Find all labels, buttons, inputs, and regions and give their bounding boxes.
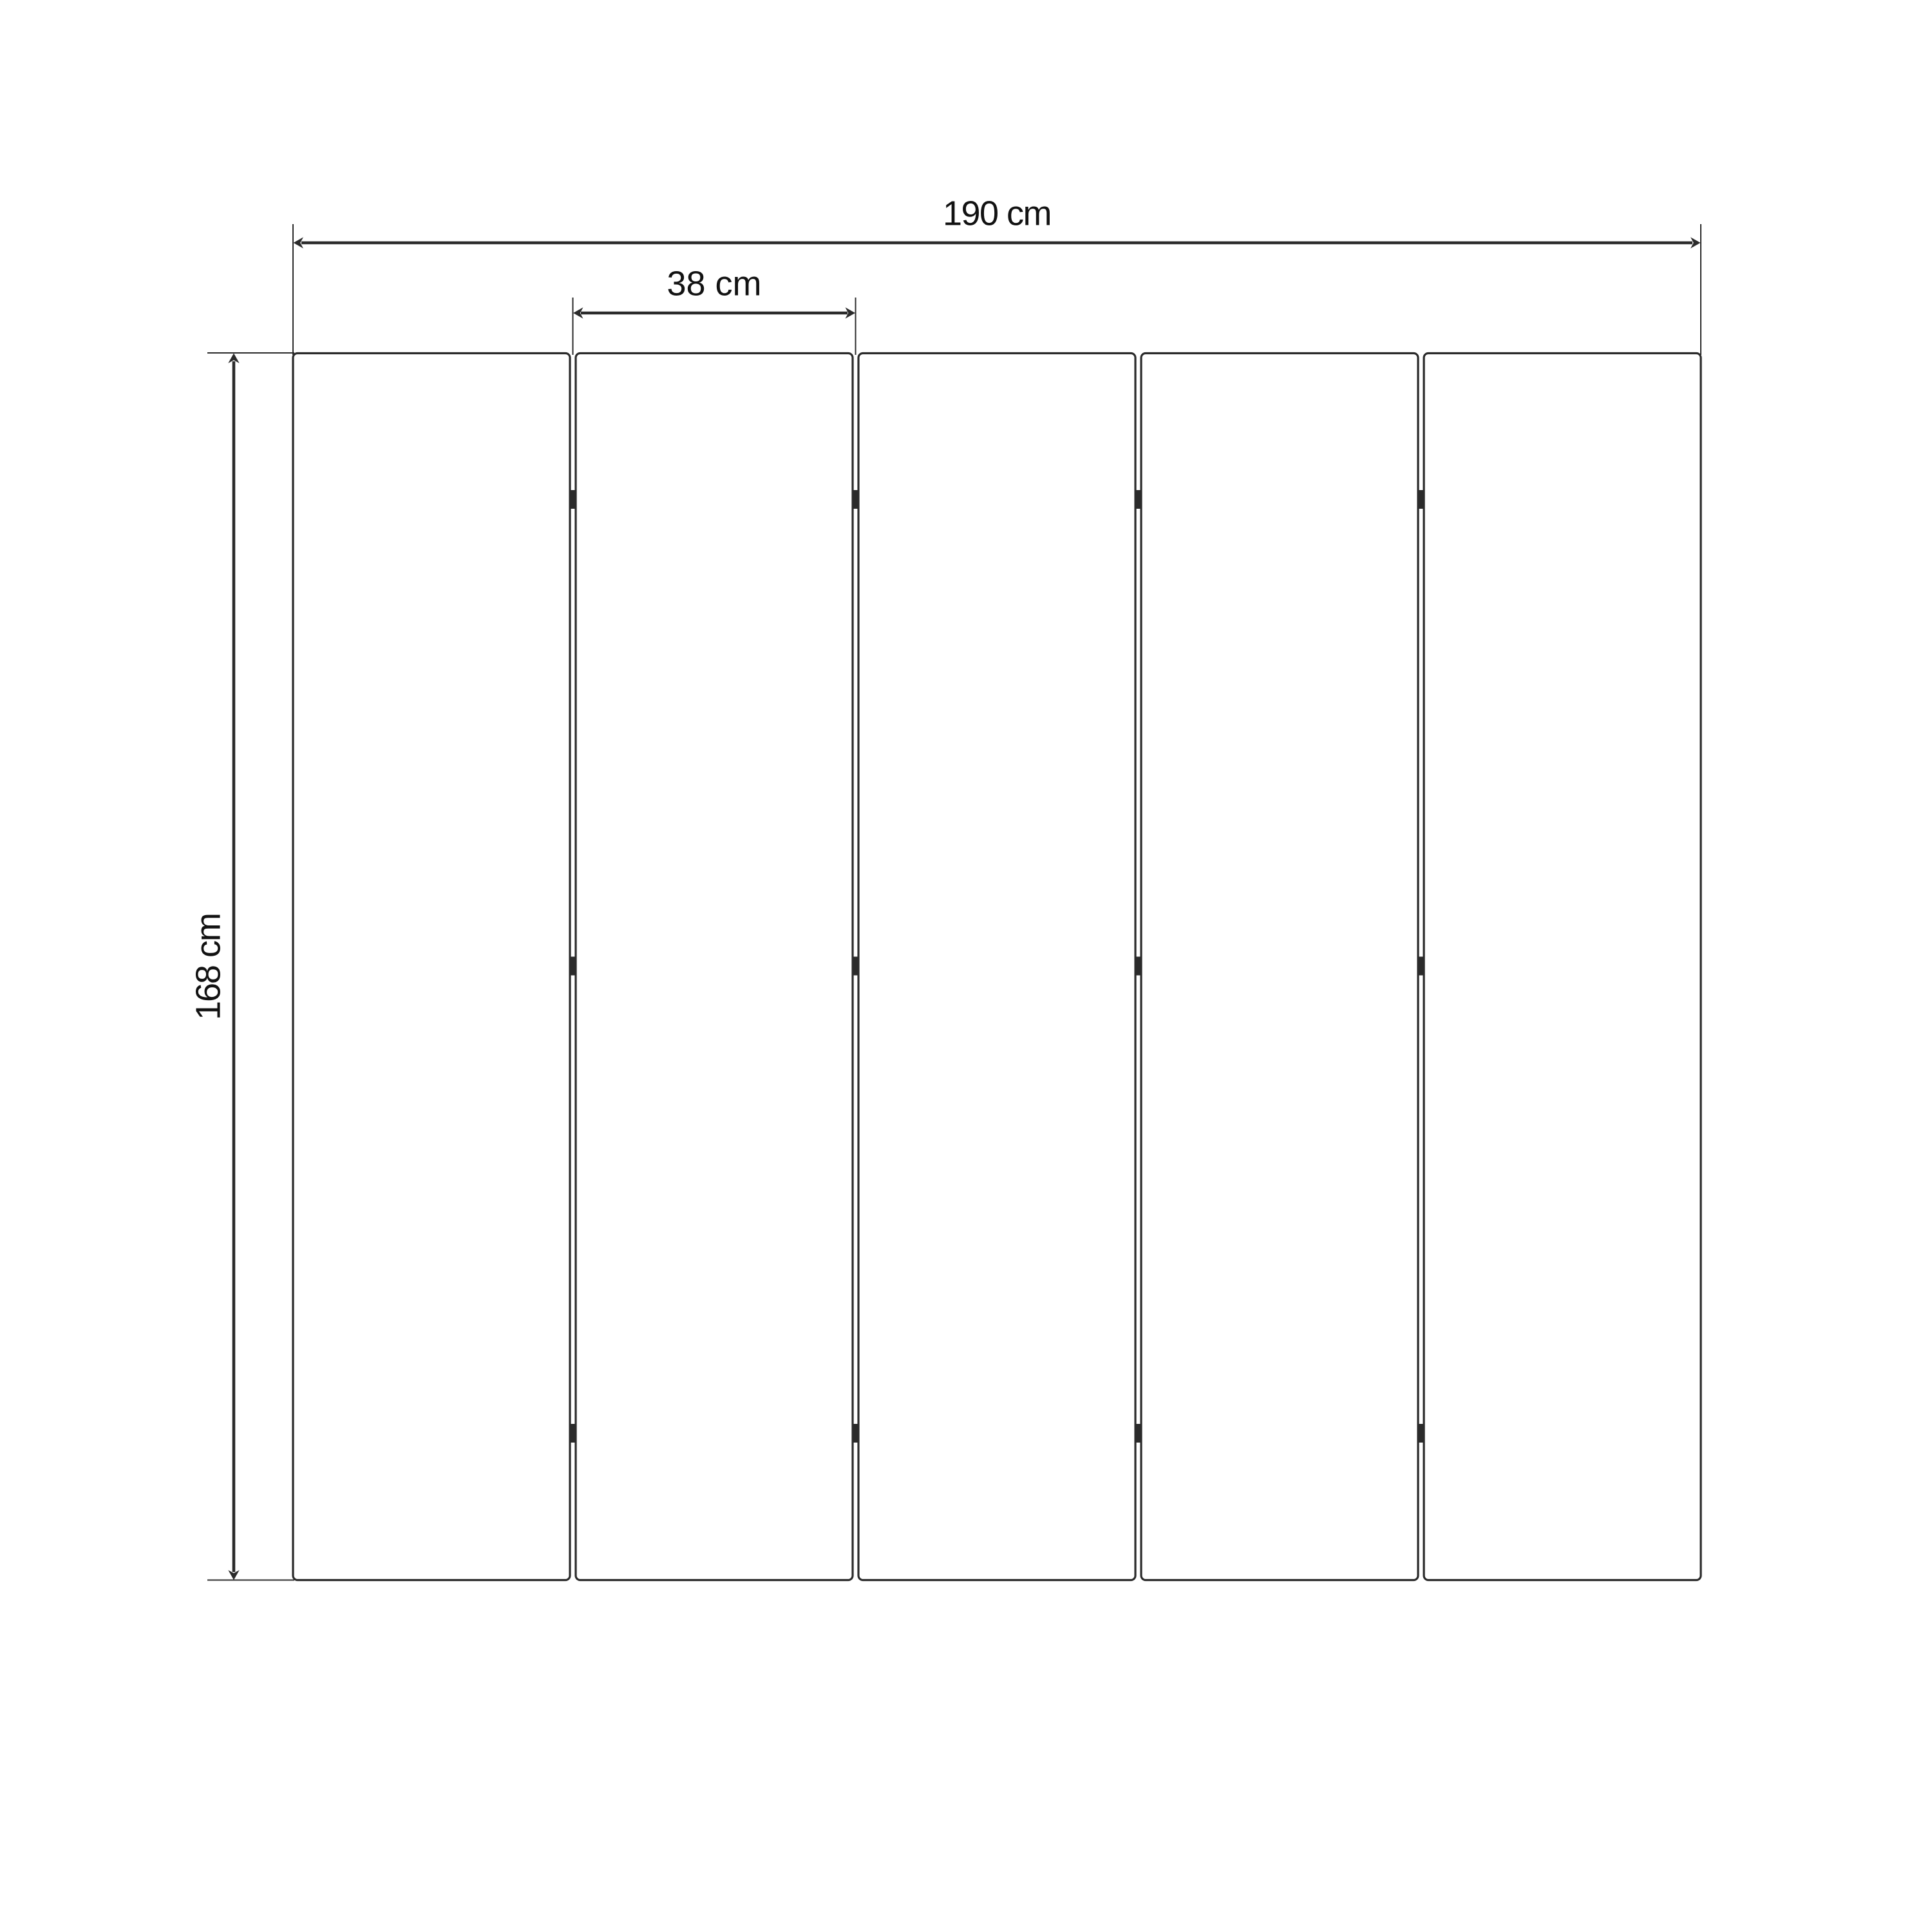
svg-text:168 cm: 168 cm [189, 914, 228, 1020]
svg-text:38 cm: 38 cm [667, 265, 761, 303]
svg-text:190 cm: 190 cm [943, 194, 1051, 233]
